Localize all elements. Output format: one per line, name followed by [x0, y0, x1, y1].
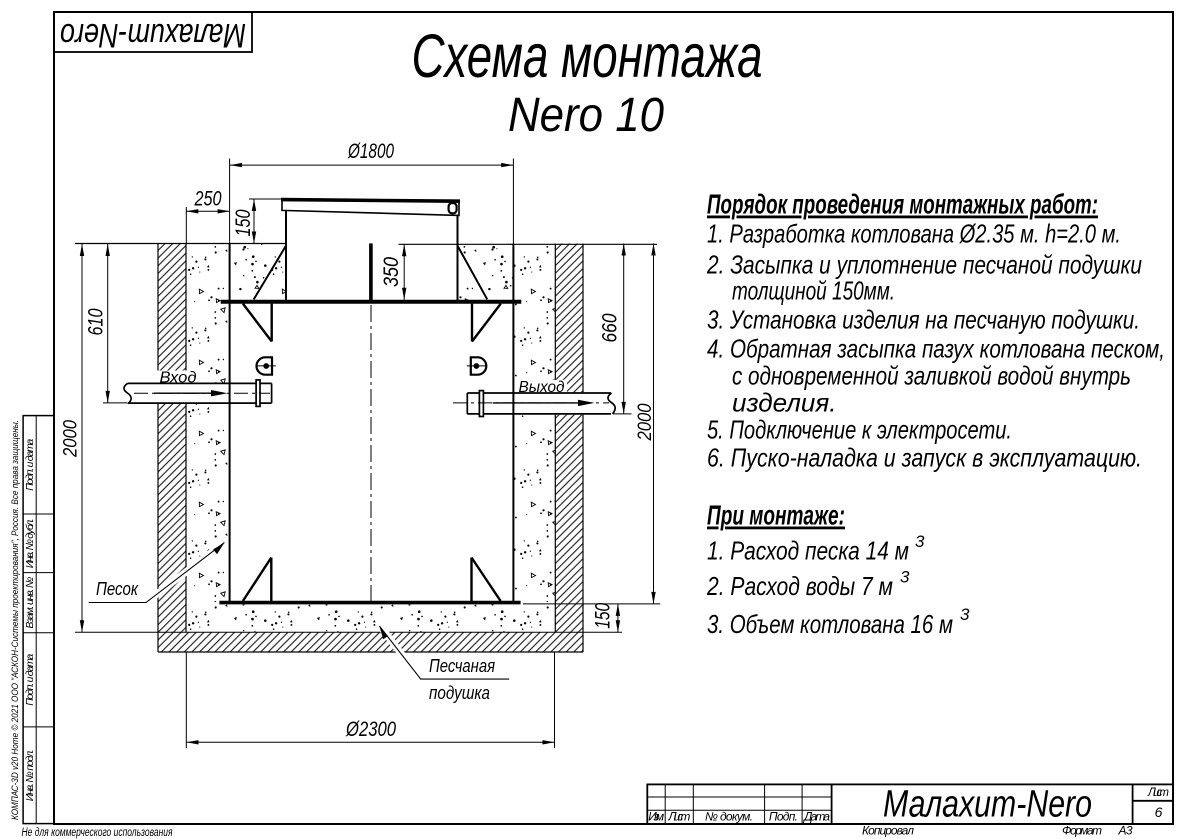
svg-text:2. Расход воды 7 м: 2. Расход воды 7 м — [706, 571, 893, 601]
svg-text:Вход: Вход — [160, 370, 197, 387]
svg-text:Малахит-Nero: Малахит-Nero — [60, 16, 246, 54]
svg-text:При монтаже:: При монтаже: — [707, 500, 845, 531]
svg-text:6: 6 — [1155, 804, 1163, 820]
svg-text:Дата: Дата — [802, 810, 830, 824]
svg-text:№ докум.: № докум. — [705, 810, 753, 824]
svg-text:Копировал: Копировал — [862, 824, 914, 838]
svg-text:1. Разработка котлована Ø2.35: 1. Разработка котлована Ø2.35 м. h=2.0 м… — [707, 219, 1121, 249]
svg-text:с одновременной заливкой водой: с одновременной заливкой водой внутрь — [732, 361, 1131, 391]
svg-text:Подп.: Подп. — [769, 810, 798, 824]
svg-text:Инв. № подл.: Инв. № подл. — [24, 749, 36, 801]
svg-text:6. Пуско-наладка и запуск в эк: 6. Пуско-наладка и запуск в эксплуатацию… — [707, 443, 1142, 473]
svg-text:150: 150 — [592, 603, 615, 629]
svg-text:КОМПАС-3D v20 Home © 2021 ООО: КОМПАС-3D v20 Home © 2021 ООО "АСКОН-Сис… — [10, 420, 20, 820]
svg-text:3. Установка изделия на песчан: 3. Установка изделия на песчаную подушки… — [707, 305, 1140, 335]
svg-text:Инв. № дубл.: Инв. № дубл. — [24, 518, 36, 568]
svg-text:Песок: Песок — [96, 578, 139, 599]
svg-text:Выход: Выход — [519, 379, 565, 396]
svg-text:Взам. инв. №: Взам. инв. № — [24, 577, 36, 629]
svg-text:Nero 10: Nero 10 — [508, 89, 664, 142]
svg-text:2000: 2000 — [61, 420, 82, 458]
svg-text:толщиной 150мм.: толщиной 150мм. — [732, 276, 895, 306]
svg-text:А3: А3 — [1118, 824, 1133, 838]
svg-text:1. Расход песка 14 м: 1. Расход песка 14 м — [707, 536, 909, 566]
svg-text:Песчаная: Песчаная — [429, 655, 495, 676]
svg-text:660: 660 — [599, 313, 622, 342]
svg-text:Порядок проведения монтажных р: Порядок проведения монтажных работ: — [707, 189, 1098, 220]
svg-text:подушка: подушка — [429, 682, 490, 703]
svg-text:Формат: Формат — [1062, 824, 1102, 838]
svg-text:изделия.: изделия. — [732, 388, 836, 418]
svg-text:610: 610 — [85, 308, 108, 335]
svg-text:Подп. и дата: Подп. и дата — [24, 654, 36, 706]
svg-text:350: 350 — [380, 257, 403, 287]
svg-text:3: 3 — [915, 532, 925, 551]
svg-text:Лист: Лист — [667, 810, 690, 824]
svg-text:Схема монтажа: Схема монтажа — [412, 22, 763, 90]
svg-text:3: 3 — [900, 568, 910, 587]
svg-text:Изм.: Изм. — [648, 810, 664, 824]
svg-text:Ø1800: Ø1800 — [347, 140, 394, 163]
svg-text:Ø2300: Ø2300 — [345, 718, 396, 741]
svg-text:4. Обратная засыпка пазух котл: 4. Обратная засыпка пазух котлована песк… — [707, 334, 1165, 364]
svg-text:150: 150 — [232, 209, 255, 236]
svg-text:Подп. и дата: Подп. и дата — [24, 439, 36, 491]
svg-text:3. Объем котлована 16 м: 3. Объем котлована 16 м — [707, 609, 953, 639]
svg-text:Лист: Лист — [1147, 787, 1169, 799]
svg-text:2000: 2000 — [635, 403, 656, 441]
svg-text:3: 3 — [960, 605, 970, 624]
svg-text:5. Подключение к электросети.: 5. Подключение к электросети. — [707, 415, 1012, 445]
svg-text:250: 250 — [194, 188, 222, 211]
svg-text:Не для коммерческого использов: Не для коммерческого использования — [22, 827, 173, 839]
svg-text:Малахит-Nero: Малахит-Nero — [883, 784, 1092, 826]
